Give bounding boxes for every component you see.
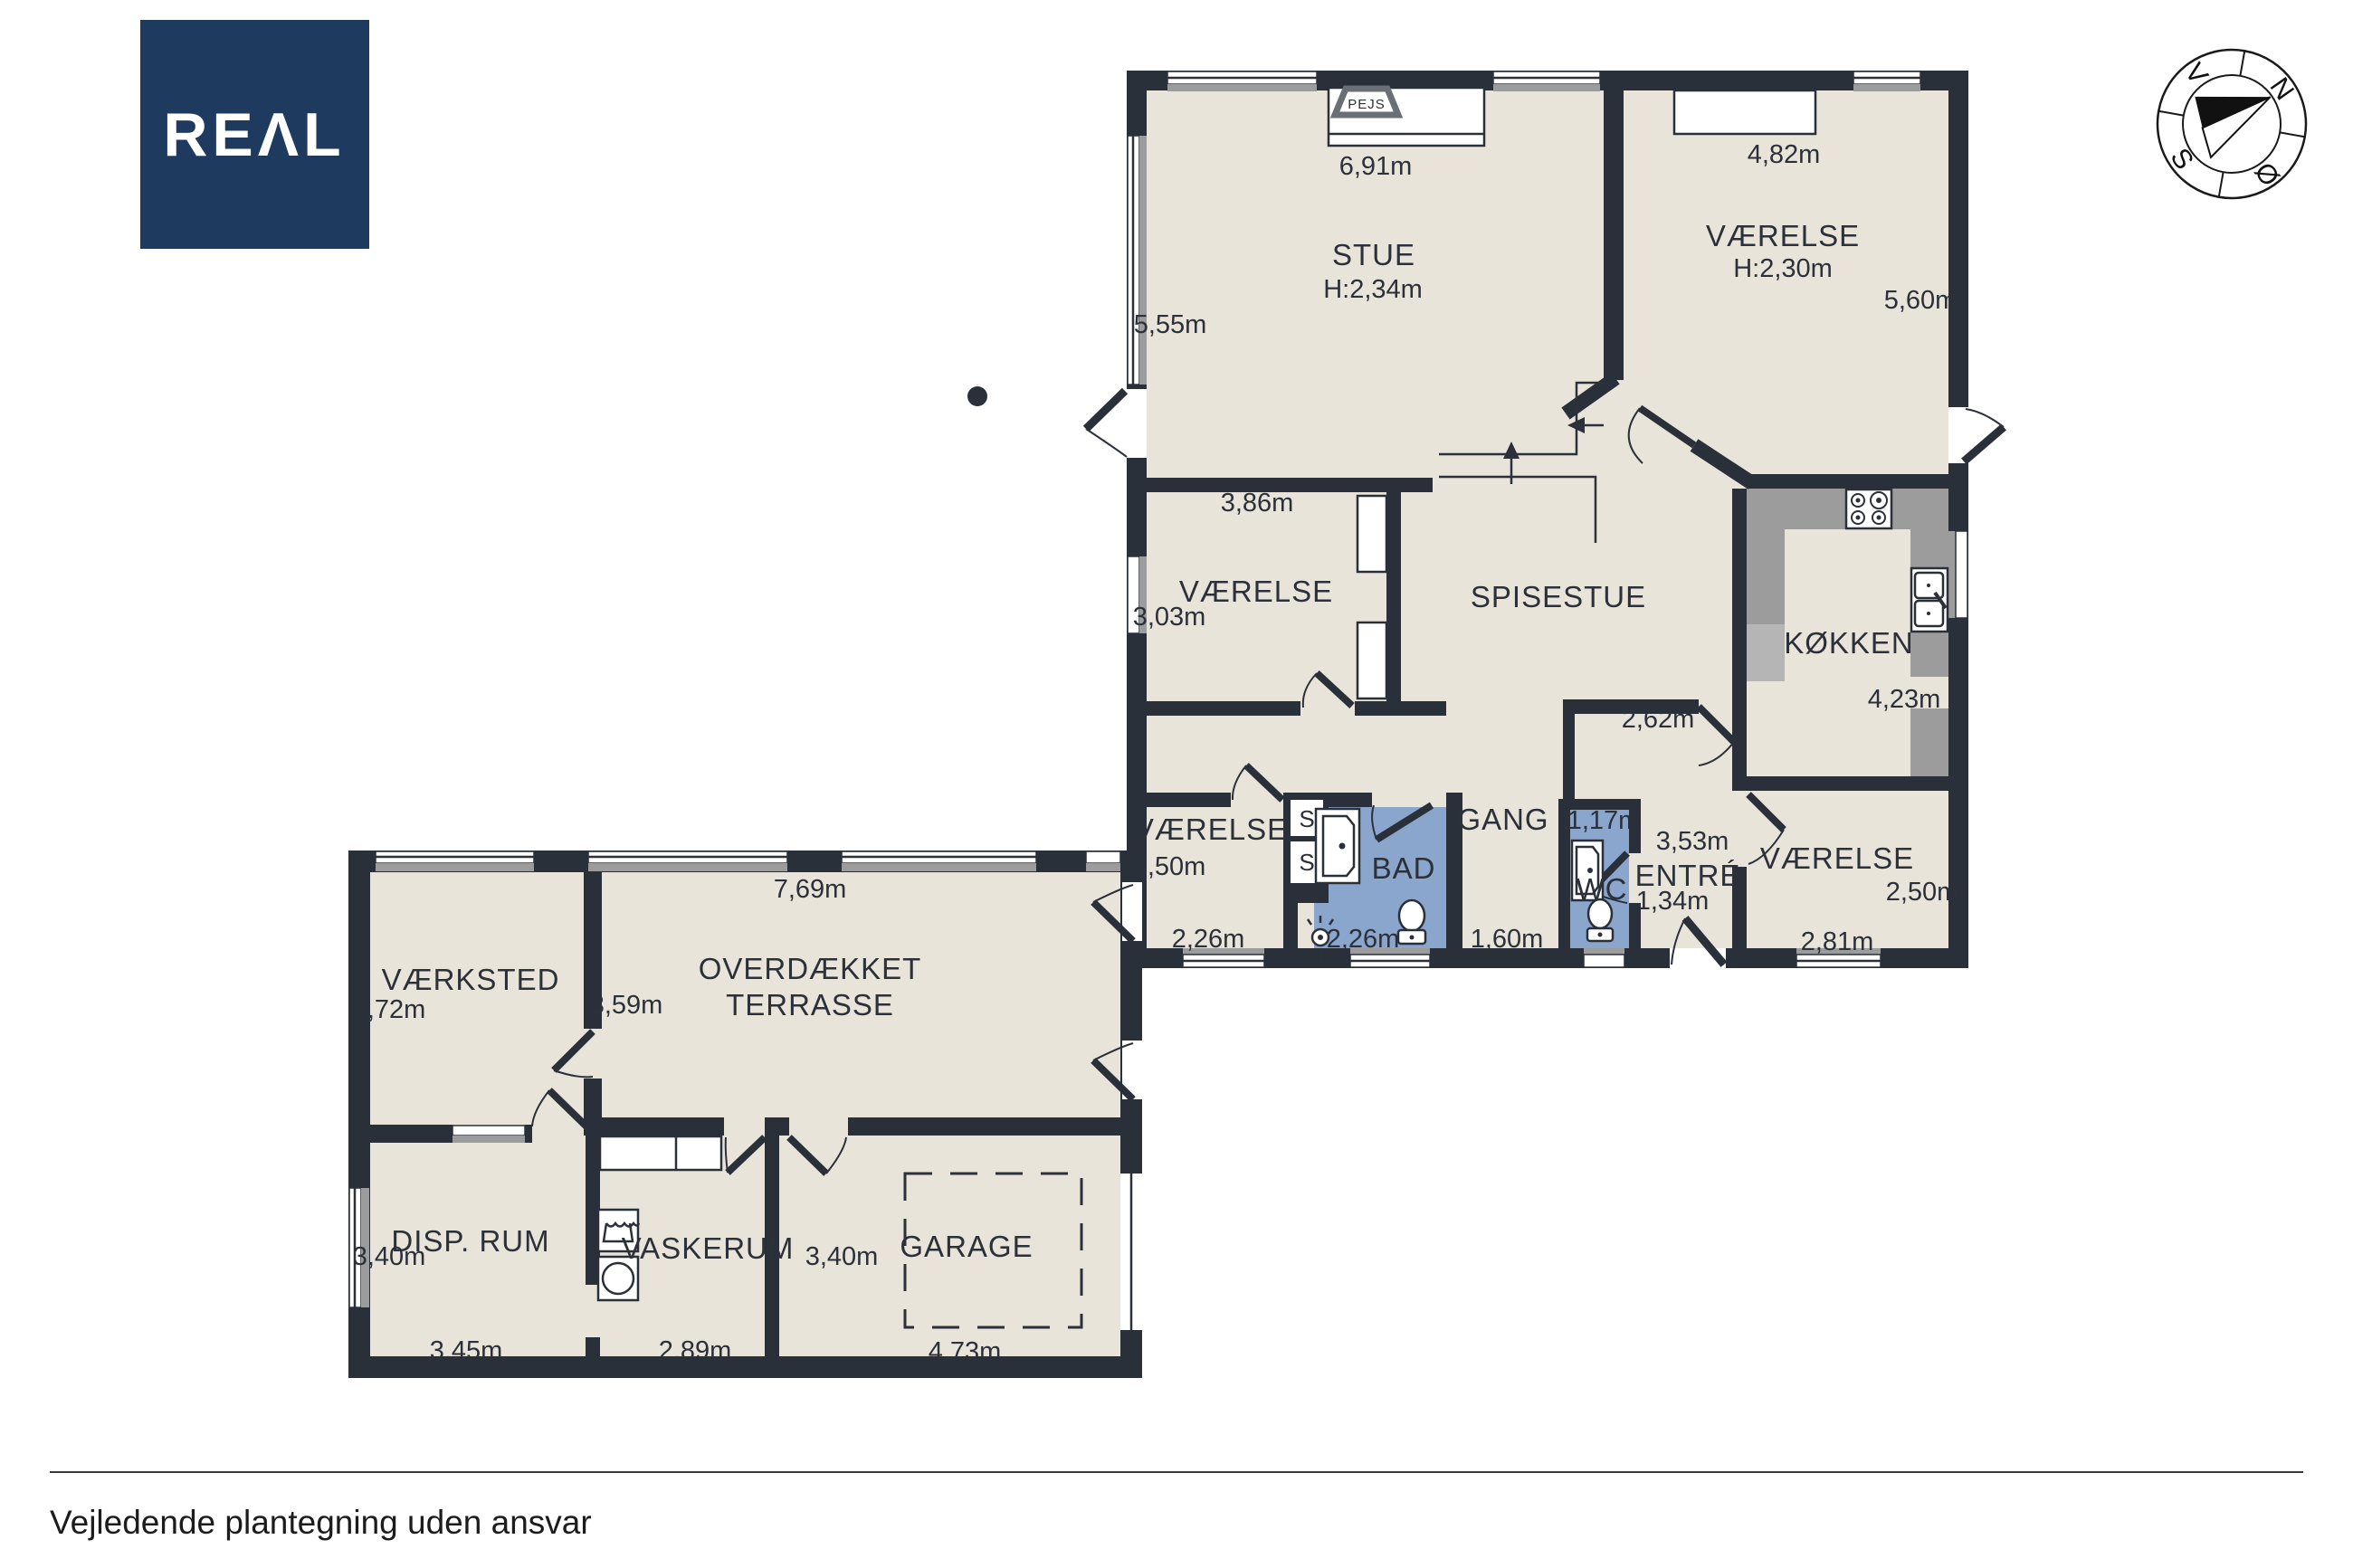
logo-text: REΛL [163,100,345,169]
measure-terrasse-width: 7,69m [774,875,847,904]
measure-garage-height: 3,40m [805,1242,879,1271]
footer: Vejledende plantegning uden ansvar [50,1472,2303,1541]
room-label-vaskerum: VASKERUM [622,1231,795,1265]
floorplan-page: REΛL N Ø S V [0,0,2353,1568]
stove-icon [1846,489,1891,528]
fireplace-label: PEJS [1348,97,1386,112]
measure-vaerelse-mid-width: 3,86m [1221,489,1294,518]
measure-garage-width: 4,73m [929,1337,1002,1366]
measure-wc-width: 1,17m [1567,806,1641,835]
measure-disp-rum-width: 3,45m [430,1336,503,1365]
room-label-wc: WC [1577,872,1628,906]
kitchen-sink-icon [1911,568,1948,632]
measure-vaerelse-sv-width: 2,26m [1172,925,1245,954]
laundry-counter-icon [600,1136,721,1170]
measure-vaerelse-se-height: 2,50m [1886,878,1959,907]
measure-vaerelse-se-width: 2,81m [1801,927,1874,956]
room-label-gang: GANG [1457,803,1548,836]
room-label-vaerelse-ne: VÆRELSE [1706,219,1860,252]
room-label-terrasse-2: TERRASSE [726,988,894,1022]
measure-vaerelse-mid-height: 3,03m [1133,603,1206,632]
measure-vaerelse-ne-height: 5,60m [1884,286,1958,315]
measure-stue-width: 6,91m [1339,152,1413,181]
measure-vaerelse-ne-width: 4,82m [1748,140,1821,169]
wardrobe-s2-label: S [1299,849,1314,876]
fireplace: PEJS [1329,88,1484,146]
measure-entre-2: 1,34m [1636,887,1710,916]
closet-ne-icon [1674,90,1815,134]
room-label-stue: STUE [1332,238,1415,271]
room-label-vaerksted: VÆRKSTED [382,963,560,996]
outbuilding: VÆRKSTED 3,72m OVERDÆKKET TERRASSE 7,69m… [348,851,1142,1378]
bad-toilet-icon [1398,900,1425,944]
room-label-koekken: KØKKEN [1784,626,1914,660]
compass-rose: N Ø S V [2127,20,2337,229]
room-label-vaerelse-sv: VÆRELSE [1134,813,1288,846]
wardrobe-s1-label: S [1299,805,1314,832]
measure-terrasse-height: 3,59m [590,991,663,1020]
measure-vaskerum: 2,89m [659,1336,732,1365]
measure-entre-1: 3,53m [1656,827,1729,856]
measure-koekken: 4,23m [1868,685,1941,714]
room-label-spisestue: SPISESTUE [1471,580,1646,613]
site-marker-dot [967,386,987,406]
footer-disclaimer: Vejledende plantegning uden ansvar [50,1504,592,1541]
floorplan-svg: REΛL N Ø S V [0,0,2353,1568]
measure-gang-width: 1,60m [1471,925,1544,954]
closet-mid-2-icon [1357,622,1386,698]
ceiling-stue: H:2,34m [1323,275,1423,304]
measure-vaerelse-sv-height: 3,50m [1133,852,1206,881]
room-label-terrasse-1: OVERDÆKKET [699,952,922,985]
room-label-vaerelse-se: VÆRELSE [1760,841,1914,875]
measure-disp-rum-height: 3,40m [353,1242,426,1271]
measure-vaerksted: 3,72m [353,995,426,1024]
closet-mid-1-icon [1357,496,1386,572]
main-house: PEJS S S [1086,71,2004,968]
measure-bad-width: 2,26m [1327,925,1400,954]
measure-nook-width: 2,62m [1622,705,1695,734]
ceiling-vaerelse-ne: H:2,30m [1733,254,1833,283]
room-label-bad: BAD [1372,851,1436,885]
real-logo: REΛL [140,20,369,249]
outbuilding-floor [348,851,1142,1378]
room-label-garage: GARAGE [900,1230,1033,1263]
measure-stue-height: 5,55m [1134,310,1207,339]
